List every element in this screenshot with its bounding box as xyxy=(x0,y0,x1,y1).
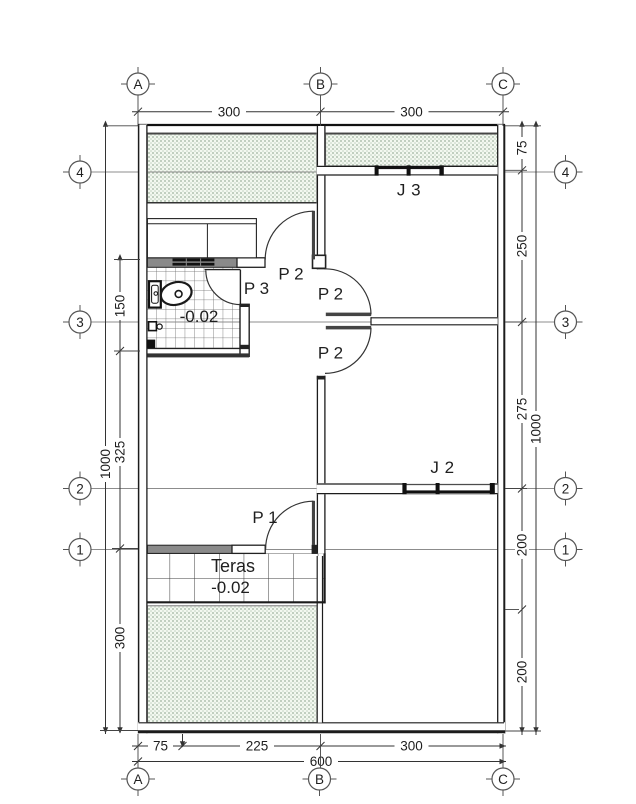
svg-text:P 2: P 2 xyxy=(318,344,343,363)
svg-text:1: 1 xyxy=(76,543,84,558)
svg-text:P 2: P 2 xyxy=(318,285,343,304)
svg-text:150: 150 xyxy=(113,295,128,318)
svg-text:-0.02: -0.02 xyxy=(180,307,219,326)
svg-text:275: 275 xyxy=(515,398,530,421)
svg-text:300: 300 xyxy=(113,627,128,650)
svg-text:75: 75 xyxy=(153,739,168,754)
svg-text:P 3: P 3 xyxy=(244,279,269,298)
svg-text:-0.02: -0.02 xyxy=(211,578,250,597)
svg-text:250: 250 xyxy=(515,235,530,258)
svg-text:200: 200 xyxy=(515,661,530,684)
svg-text:B: B xyxy=(315,772,324,787)
svg-text:A: A xyxy=(133,77,142,92)
svg-text:2: 2 xyxy=(562,482,570,497)
svg-text:P 1: P 1 xyxy=(252,508,277,527)
svg-text:C: C xyxy=(498,772,508,787)
svg-text:Teras: Teras xyxy=(211,556,255,576)
svg-text:B: B xyxy=(316,77,325,92)
svg-text:1000: 1000 xyxy=(529,414,544,444)
svg-text:200: 200 xyxy=(515,534,530,557)
svg-text:A: A xyxy=(133,772,142,787)
svg-text:75: 75 xyxy=(515,140,530,155)
svg-text:J 3: J 3 xyxy=(397,181,421,200)
svg-text:J 2: J 2 xyxy=(430,458,454,477)
svg-text:4: 4 xyxy=(562,165,570,180)
svg-text:3: 3 xyxy=(76,315,84,330)
svg-text:600: 600 xyxy=(310,754,333,769)
svg-text:4: 4 xyxy=(76,165,84,180)
svg-text:1: 1 xyxy=(562,543,570,558)
svg-text:C: C xyxy=(498,77,508,92)
svg-text:300: 300 xyxy=(400,104,423,119)
svg-text:300: 300 xyxy=(218,104,241,119)
svg-text:2: 2 xyxy=(76,482,84,497)
svg-text:225: 225 xyxy=(246,739,269,754)
svg-text:1000: 1000 xyxy=(98,449,113,479)
svg-text:P 2: P 2 xyxy=(278,265,303,284)
svg-text:300: 300 xyxy=(400,739,423,754)
svg-text:325: 325 xyxy=(113,441,128,464)
svg-text:3: 3 xyxy=(562,315,570,330)
